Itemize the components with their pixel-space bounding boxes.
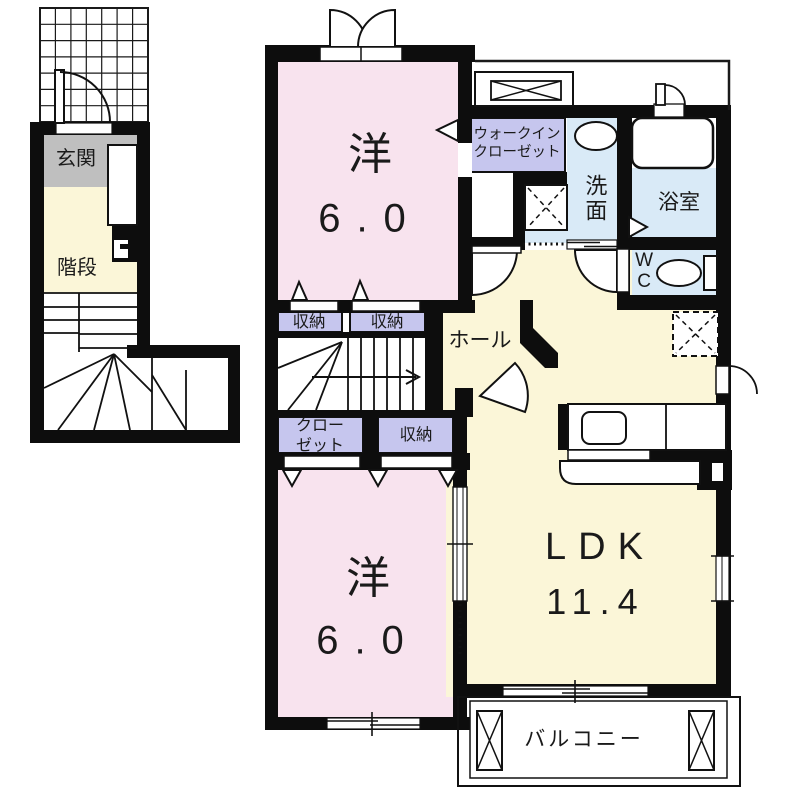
bathtub-icon bbox=[632, 118, 713, 168]
floor-plan: 玄関 階段 洋 6.0 ウォークイン クローゼット 洗面 浴室 WC ホール 収… bbox=[0, 0, 800, 800]
sink-icon bbox=[575, 122, 617, 150]
balcony-label: バルコニー bbox=[524, 727, 644, 753]
wall-dash bbox=[120, 244, 129, 249]
casement-window-icon bbox=[320, 10, 402, 61]
bedroom-bottom-size: 6.0 bbox=[316, 617, 420, 666]
refrigerator-space-icon bbox=[673, 312, 718, 356]
walk-in-closet-label: ウォークイン クローゼット bbox=[474, 126, 561, 161]
indoor-stairs-floor bbox=[278, 338, 425, 410]
bedroom-top-size: 6.0 bbox=[318, 195, 422, 244]
bath-window-icon bbox=[654, 84, 685, 117]
storage-label-3: 収納 bbox=[400, 425, 433, 445]
entrance-label: 玄関 bbox=[56, 147, 96, 171]
ldk-floor bbox=[446, 307, 731, 697]
kitchen-sink-icon bbox=[582, 412, 626, 444]
floor-plan-drawing bbox=[0, 0, 800, 800]
outdoor-stairs-floor bbox=[44, 293, 137, 430]
side-door-icon bbox=[716, 366, 757, 394]
washing-machine-pan-icon bbox=[525, 185, 567, 230]
ldk-size: 11.4 bbox=[546, 580, 645, 624]
storage-label-2: 収納 bbox=[371, 312, 404, 332]
washroom-label: 洗面 bbox=[581, 174, 608, 224]
bathroom-label: 浴室 bbox=[658, 190, 700, 216]
storage-label-1: 収納 bbox=[293, 312, 326, 332]
fixed-window-icon bbox=[475, 72, 573, 106]
bedroom-top-type: 洋 bbox=[348, 128, 392, 182]
stairs-label: 階段 bbox=[57, 256, 97, 280]
toilet-label: WC bbox=[632, 250, 655, 292]
washroom-sliding-door-icon bbox=[567, 240, 617, 249]
shoe-cabinet-icon bbox=[108, 145, 137, 225]
ldk-label: LDK bbox=[545, 524, 655, 570]
outdoor-stairs-ext-floor bbox=[137, 357, 228, 430]
closet-label: クロー ゼット bbox=[296, 416, 344, 455]
wic-opening bbox=[458, 143, 472, 177]
hall-label: ホール bbox=[449, 328, 512, 354]
wic-floor bbox=[472, 172, 513, 239]
bedroom-bottom-type: 洋 bbox=[346, 552, 390, 606]
